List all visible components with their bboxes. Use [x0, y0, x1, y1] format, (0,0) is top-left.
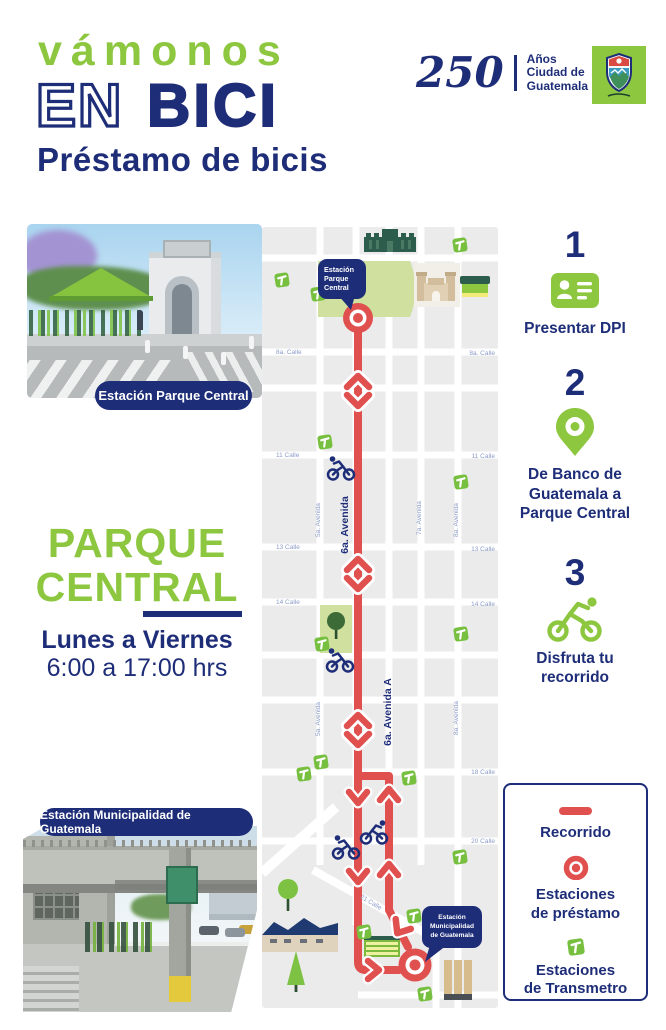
- place-line2: CENTRAL: [28, 565, 246, 609]
- transmetro-station-icon: [453, 474, 469, 490]
- page-title: vámonos: [38, 27, 290, 76]
- map-street-label: 13 Calle: [276, 544, 300, 551]
- pillar-base: [169, 976, 191, 1002]
- transmetro-station-icon: [356, 924, 372, 940]
- step-2-number: 2: [565, 364, 586, 401]
- distant-buildings: [209, 890, 257, 920]
- step-1-label: Presentar DPI: [524, 319, 626, 338]
- monument-roofbox: [163, 240, 211, 258]
- underline-bar: [143, 611, 242, 617]
- place-line1: PARQUE: [28, 521, 246, 565]
- transmetro-station-icon: [296, 766, 312, 782]
- legend-prestamo: Estaciones de préstamo: [531, 886, 620, 924]
- anniversary-caption: Años Ciudad de Guatemala: [527, 53, 588, 93]
- map-street-label: 14 Calle: [471, 601, 495, 608]
- bubble-line: Central: [324, 283, 349, 292]
- station-marker-muni: [399, 949, 432, 982]
- transmetro-station-icon: [314, 636, 330, 652]
- pedestrian: [137, 310, 143, 330]
- step-2-label: De Banco de Guatemala a Parque Central: [520, 465, 630, 523]
- map-street-label: 11 Calle: [276, 452, 300, 459]
- transmetro-station-icon: [452, 237, 468, 253]
- page-subtitle: Préstamo de bicis: [37, 141, 328, 179]
- anniversary-number: 250: [416, 52, 504, 94]
- legend-recorrido: Recorrido: [540, 824, 611, 843]
- poster: vámonos EN BICI Préstamo de bicis 250 Añ…: [0, 0, 666, 1030]
- map-street-label: 11 Calle: [472, 453, 496, 460]
- map-street-label: 14 Calle: [276, 599, 300, 606]
- route-dash-icon: [559, 807, 592, 815]
- bike-cluster: [85, 922, 155, 952]
- transmetro-station-icon: [317, 434, 333, 450]
- cars: [199, 926, 219, 935]
- map-street-label: 20 Calle: [471, 838, 495, 845]
- map-street-label: 8a. Calle: [469, 350, 495, 357]
- towers-building-icon: [444, 960, 472, 1000]
- place-name: PARQUE CENTRAL: [28, 521, 246, 610]
- city-map-svg: 8a. Calle8a. Calle11 Calle11 Calle13 Cal…: [258, 225, 500, 1011]
- cyclist-icon: [546, 597, 604, 643]
- transmetro-station-icon: [313, 754, 329, 770]
- en-bici-wordmark: EN BICI: [34, 74, 434, 138]
- step-1-number: 1: [565, 226, 586, 263]
- page-title-main: EN BICI: [34, 74, 434, 143]
- map-avenue-label: 7a. Avenida: [416, 501, 423, 535]
- map-avenue-label: 6a. Avenida: [339, 496, 351, 554]
- bike-row: [29, 310, 141, 336]
- route-map: 8a. Calle8a. Calle11 Calle11 Calle13 Cal…: [258, 225, 500, 1011]
- title-bici-solid: BICI: [147, 74, 279, 138]
- anniversary-divider: [514, 55, 517, 91]
- canopy-edge: [49, 296, 153, 301]
- transmetro-station-icon: [401, 770, 417, 786]
- transmetro-station-icon: [453, 626, 469, 642]
- canopy-tent: [49, 268, 153, 298]
- map-avenue-label: 8a. Avenida: [453, 701, 460, 735]
- map-avenue-label: 5a. Avenida: [315, 702, 322, 736]
- id-card-icon: [550, 271, 600, 311]
- city-crest-icon: [592, 46, 646, 104]
- photo-caption-municipalidad: Estación Municipalidad de Guatemala: [40, 808, 253, 836]
- map-avenue-label: 8a. Avenida: [453, 503, 460, 537]
- map-street-label: 18 Calle: [471, 769, 495, 776]
- transmetro-icon: [565, 936, 587, 956]
- bridge-railing: [23, 840, 257, 847]
- transmetro-station-icon: [274, 272, 290, 288]
- bubble-line: Parque: [324, 274, 348, 283]
- steps-column: 1 Presentar DPI 2 De Banco de Guatemala …: [505, 226, 645, 687]
- map-legend: Recorrido Estaciones de préstamo Estacio…: [503, 783, 648, 1001]
- step-3-number: 3: [565, 554, 586, 591]
- location-pin-icon: [549, 405, 601, 459]
- map-avenue-label: 5a. Avenida: [315, 503, 322, 537]
- photo-caption-parque-central: Estación Parque Central: [95, 381, 252, 410]
- city-crest-logo: [592, 46, 646, 109]
- transmetro-station-icon: [452, 849, 468, 865]
- bubble-line: Estación: [438, 914, 465, 921]
- pillar-sign: [166, 866, 198, 904]
- bubble-line: Estación: [324, 265, 354, 274]
- title-en-outline: EN: [36, 74, 123, 138]
- photo-estacion-parque-central: [27, 224, 262, 398]
- bubble-line: de Guatemala: [430, 932, 474, 939]
- map-street-label: 8a. Calle: [276, 349, 302, 356]
- transmetro-station-icon: [417, 986, 433, 1002]
- map-street-label: 13 Calle: [471, 546, 495, 553]
- market-icon: [460, 276, 490, 297]
- station-marker-parque: [343, 303, 373, 333]
- schedule-days: Lunes a Viernes: [28, 626, 246, 655]
- bollards: [145, 340, 150, 353]
- municipalidad-building-icon: [364, 936, 400, 957]
- anniversary-logo: 250 Años Ciudad de Guatemala: [416, 52, 588, 94]
- step-3-label: Disfruta tu recorrido: [536, 649, 614, 688]
- schedule-hours: 6:00 a 17:00 hrs: [28, 654, 246, 683]
- station-ring-icon: [562, 854, 590, 880]
- transmetro-station-icon: [406, 908, 422, 924]
- bubble-line: Municipalidad: [430, 923, 474, 930]
- photo-estacion-municipalidad: [23, 826, 257, 1012]
- legend-transmetro: Estaciones de Transmetro: [524, 962, 627, 1000]
- stairs: [23, 966, 79, 1012]
- map-avenue-label: 6a. Avenida A: [382, 678, 394, 746]
